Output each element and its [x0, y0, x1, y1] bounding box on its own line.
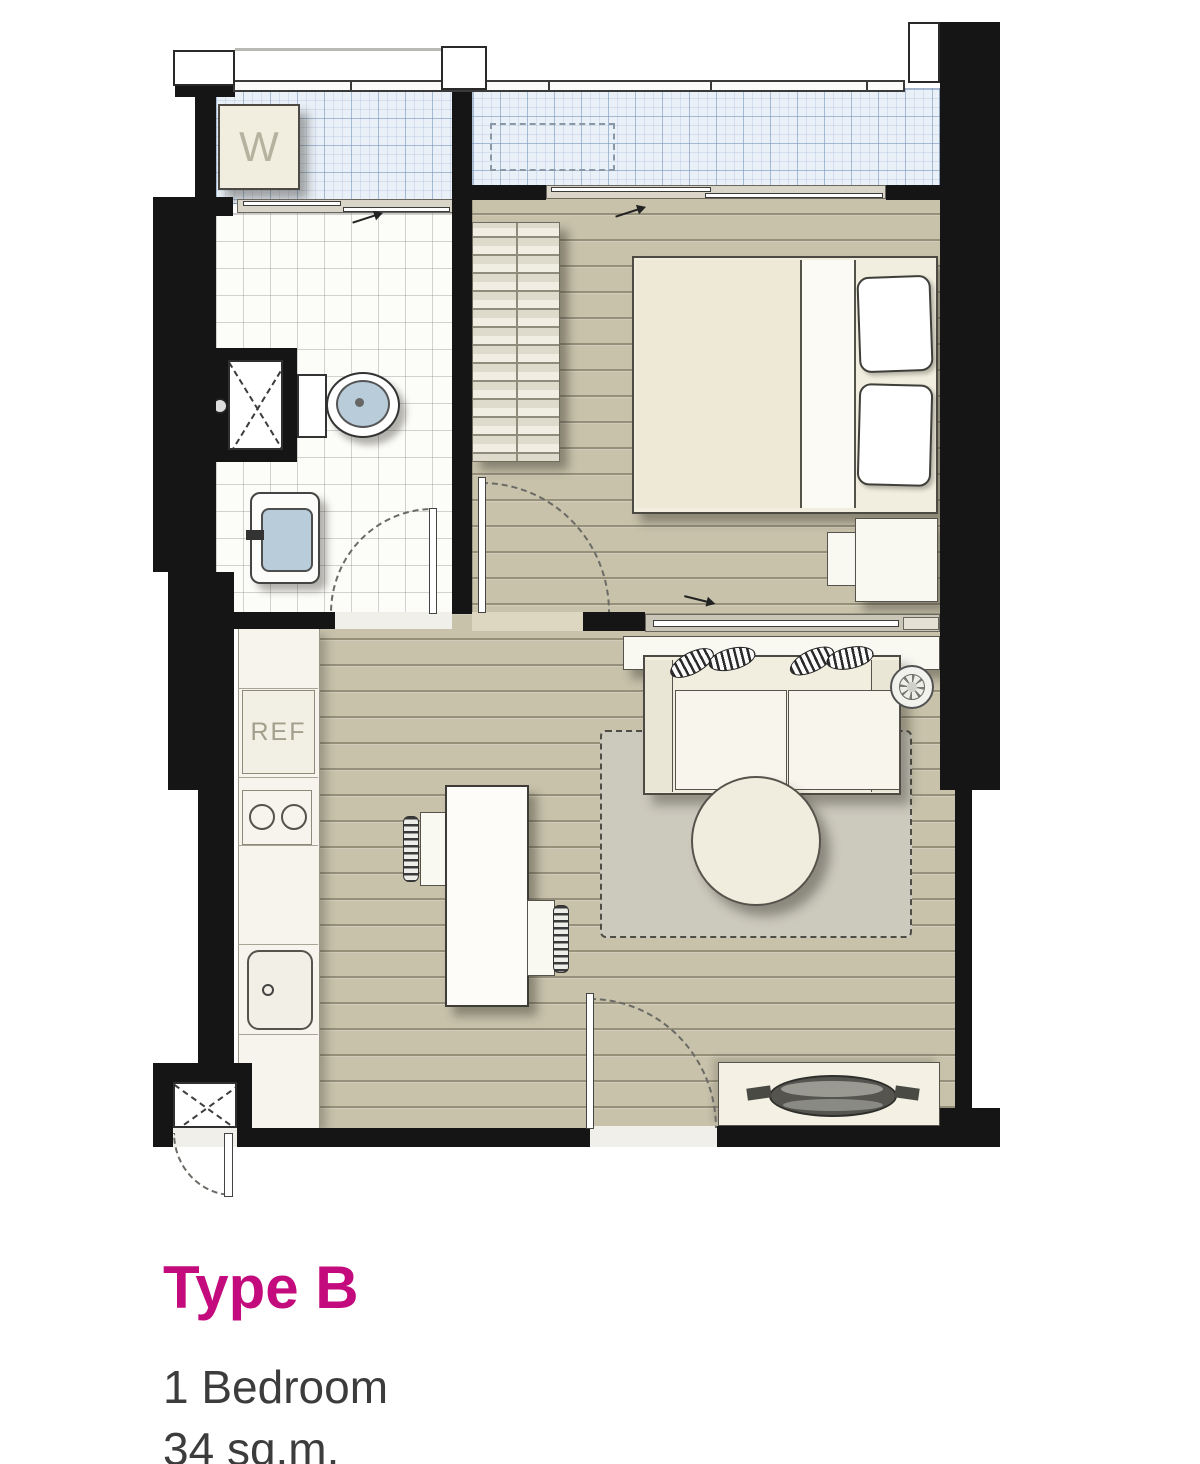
wall-segment — [237, 1083, 252, 1128]
dining-chair-seat — [527, 900, 555, 976]
refrigerator-label: REF — [243, 691, 314, 773]
coffee-table — [691, 776, 821, 906]
bed-mattress — [636, 260, 802, 508]
wall-segment — [717, 1126, 943, 1147]
fan-icon — [890, 665, 934, 709]
parapet-joint — [548, 80, 550, 92]
stove-icon — [242, 790, 312, 845]
balcony-parapet — [233, 80, 905, 92]
wall-segment — [153, 197, 233, 216]
sofa-armrest — [645, 660, 673, 792]
upper-edge-line — [235, 48, 452, 51]
sofa-seat-cushion — [788, 690, 900, 790]
burner — [281, 804, 307, 830]
wall-segment — [886, 185, 940, 200]
service-door-panel — [224, 1133, 233, 1197]
washer-icon: W — [218, 104, 300, 190]
counter-divider — [238, 845, 318, 846]
dining-table — [445, 785, 529, 1007]
wall-segment — [153, 216, 216, 572]
structural-column — [441, 46, 487, 90]
kitchen-sink-icon — [247, 950, 313, 1030]
wall-segment — [168, 572, 234, 790]
wall-segment — [237, 1128, 590, 1147]
bedroom-balcony-sliding-door — [546, 185, 886, 199]
wall-segment — [153, 1063, 252, 1083]
wall-segment — [955, 790, 972, 1112]
entry-duct-shaft-x-icon — [173, 1082, 237, 1128]
wall-segment — [583, 612, 645, 631]
counter-divider — [238, 777, 318, 778]
nightstand-small — [827, 532, 857, 586]
wall-segment — [472, 185, 546, 200]
washer-label: W — [220, 106, 298, 188]
door-opening — [590, 1126, 717, 1147]
title-block: Type B 1 Bedroom 34 sq.m. — [163, 1258, 388, 1464]
dining-chair-seat — [420, 812, 448, 886]
floor-plan-canvas: REF W — [0, 0, 1200, 1464]
balcony-planter-outline — [490, 123, 615, 171]
wall-segment — [198, 790, 234, 1063]
pillow — [857, 383, 934, 487]
bathroom-door-panel — [429, 508, 437, 614]
unit-type-title: Type B — [163, 1258, 388, 1318]
wall-segment — [153, 1083, 173, 1147]
bed-sheet-band — [802, 260, 856, 508]
wall-segment — [233, 612, 335, 629]
toilet-icon — [297, 372, 401, 442]
wall-segment — [195, 83, 216, 199]
parapet-joint — [866, 80, 868, 92]
laundry-balcony-sliding-door — [237, 199, 453, 213]
bedroom-count-label: 1 Bedroom — [163, 1364, 388, 1410]
counter-divider — [238, 1034, 318, 1035]
area-label: 34 sq.m. — [163, 1426, 388, 1464]
counter-divider — [238, 944, 318, 945]
door-opening — [335, 612, 452, 629]
sink-drain — [262, 984, 274, 996]
wall-segment — [452, 50, 472, 614]
wall-segment — [940, 1108, 1000, 1147]
washbasin-icon — [250, 492, 320, 584]
wall-notch — [908, 22, 940, 83]
door-opening — [472, 612, 583, 631]
duct-shaft-x-icon — [228, 360, 283, 450]
dining-chair-back — [553, 905, 569, 973]
burner — [249, 804, 275, 830]
main-entrance-door-panel — [586, 993, 594, 1129]
nightstand — [855, 518, 938, 602]
parapet-joint — [710, 80, 712, 92]
dining-chair-back — [403, 816, 419, 882]
structural-column — [173, 50, 235, 86]
parapet-joint — [350, 80, 352, 92]
wall-segment — [940, 22, 1000, 790]
pillow — [856, 275, 933, 374]
counter-divider — [238, 688, 318, 689]
wardrobe — [472, 222, 560, 462]
living-partition-sliding-door — [645, 614, 940, 632]
tv-console — [718, 1062, 940, 1126]
sofa-seat-cushion — [675, 690, 787, 790]
refrigerator-icon: REF — [242, 690, 315, 774]
bedroom-door-panel — [478, 477, 486, 613]
